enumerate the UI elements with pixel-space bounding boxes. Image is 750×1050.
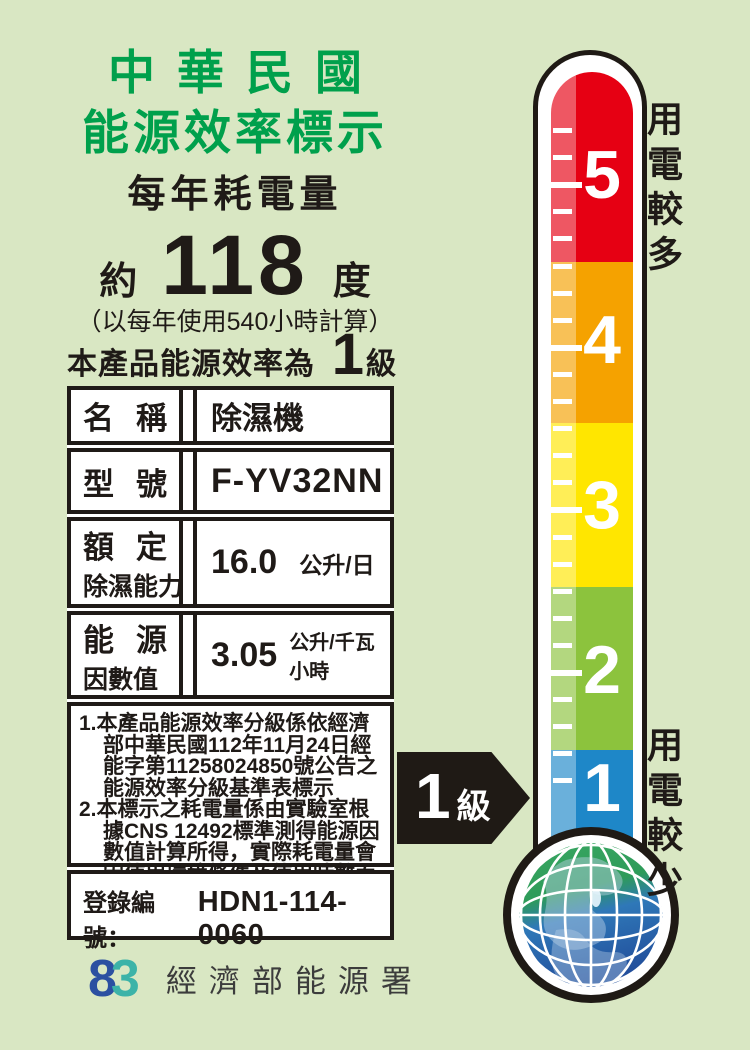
spec-table: 名 稱 除濕機 型 號 F-YV32NN [67,386,394,940]
label-char: 號 [136,459,167,504]
minor-tick [553,589,572,594]
note-number: 1. [79,712,97,735]
label-char: 源 [136,615,167,660]
registration-number: HDN1-114-0060 [198,886,390,952]
minor-tick [553,616,572,621]
energy-efficiency-label: 中華民國 能源效率標示 每年耗電量 約 118 度 （以每年使用540小時計算）… [0,0,750,1050]
row-capacity-label: 額 定 除濕能力 [71,521,183,604]
level-2-number: 2 [533,636,647,704]
note-item-1: 1.本產品能源效率分級係依經濟部中華民國112年11月24日經能字第112580… [79,713,382,799]
consumption-kwh: 118 [161,225,309,305]
table-row-model: 型 號 F-YV32NN [67,448,394,514]
row-name-label: 名 稱 [71,390,183,441]
registration-box: 登錄編號： HDN1-114-0060 [67,870,394,940]
minor-tick [553,399,572,404]
level-5-number: 5 [533,141,647,209]
grade-number: 1 [332,330,364,380]
model-number: F-YV32NN [211,462,383,501]
consumption-unit: 度 [333,250,371,305]
label-subline: 除濕能力 [83,567,167,603]
energy-factor-unit: 公升/千瓦小時 [289,626,390,684]
capacity-unit: 公升/日 [299,546,374,580]
row-name-value: 除濕機 [193,390,390,441]
capacity-value: 16.0 [211,543,277,582]
level-3-number: 3 [533,471,647,539]
label-subline: 因數值 [83,660,167,696]
energy-factor-value: 3.05 [211,636,277,675]
more-power-label: 用電較多 [646,100,688,280]
minor-tick [553,453,572,458]
row-model-label: 型 號 [71,452,183,510]
column-gap [183,452,193,510]
arrow-grade-number: 1 [415,752,451,840]
minor-tick [553,724,572,729]
row-model-value: F-YV32NN [193,452,390,510]
minor-tick [553,426,572,431]
logo-glyph-right: 3 [111,957,140,1001]
annual-consumption-heading: 每年耗電量 [30,163,440,218]
note-number: 2. [79,798,97,821]
label-char: 額 [83,522,114,567]
grade-suffix: 級 [366,339,397,383]
table-row-name: 名 稱 除濕機 [67,386,394,445]
row-energy-factor-label: 能 源 因數值 [71,615,183,695]
label-title-line2: 能源效率標示 [30,94,440,163]
product-name: 除濕機 [211,393,304,438]
minor-tick [553,209,572,214]
less-power-label: 用電較少 [646,726,688,906]
notes-box: 1.本產品能源效率分級係依經濟部中華民國112年11月24日經能字第112580… [67,702,394,867]
column-gap [183,390,193,441]
energy-agency-logo-icon: 8 3 [88,957,140,1001]
label-char: 定 [136,522,167,567]
arrow-grade-suffix: 級 [457,779,491,828]
column-gap [183,615,193,695]
minor-tick [553,562,572,567]
row-capacity-value: 16.0 公升/日 [193,521,390,604]
minor-tick [553,291,572,296]
label-char: 稱 [136,393,167,438]
row-energy-factor-value: 3.05 公升/千瓦小時 [193,615,390,695]
annual-consumption-value: 約 118 度 [40,225,430,305]
footer: 8 3 經濟部能源署 [88,956,424,1001]
label-title-line1: 中華民國 [30,34,440,103]
table-row-capacity: 額 定 除濕能力 16.0 公升/日 [67,517,394,608]
column-gap [183,521,193,604]
label-char: 名 [83,393,114,438]
label-char: 能 [83,615,114,660]
registration-label: 登錄編號： [83,883,190,953]
table-row-energy-factor: 能 源 因數值 3.05 公升/千瓦小時 [67,611,394,699]
consumption-prefix: 約 [99,250,137,305]
label-char: 型 [83,459,114,504]
level-4-number: 4 [533,306,647,374]
minor-tick [553,264,572,269]
minor-tick [553,236,572,241]
minor-tick [553,128,572,133]
note-text: 本產品能源效率分級係依經濟部中華民國112年11月24日經能字第11258024… [97,712,378,800]
agency-name: 經濟部能源署 [166,956,424,1001]
level-1-number: 1 [533,754,647,822]
